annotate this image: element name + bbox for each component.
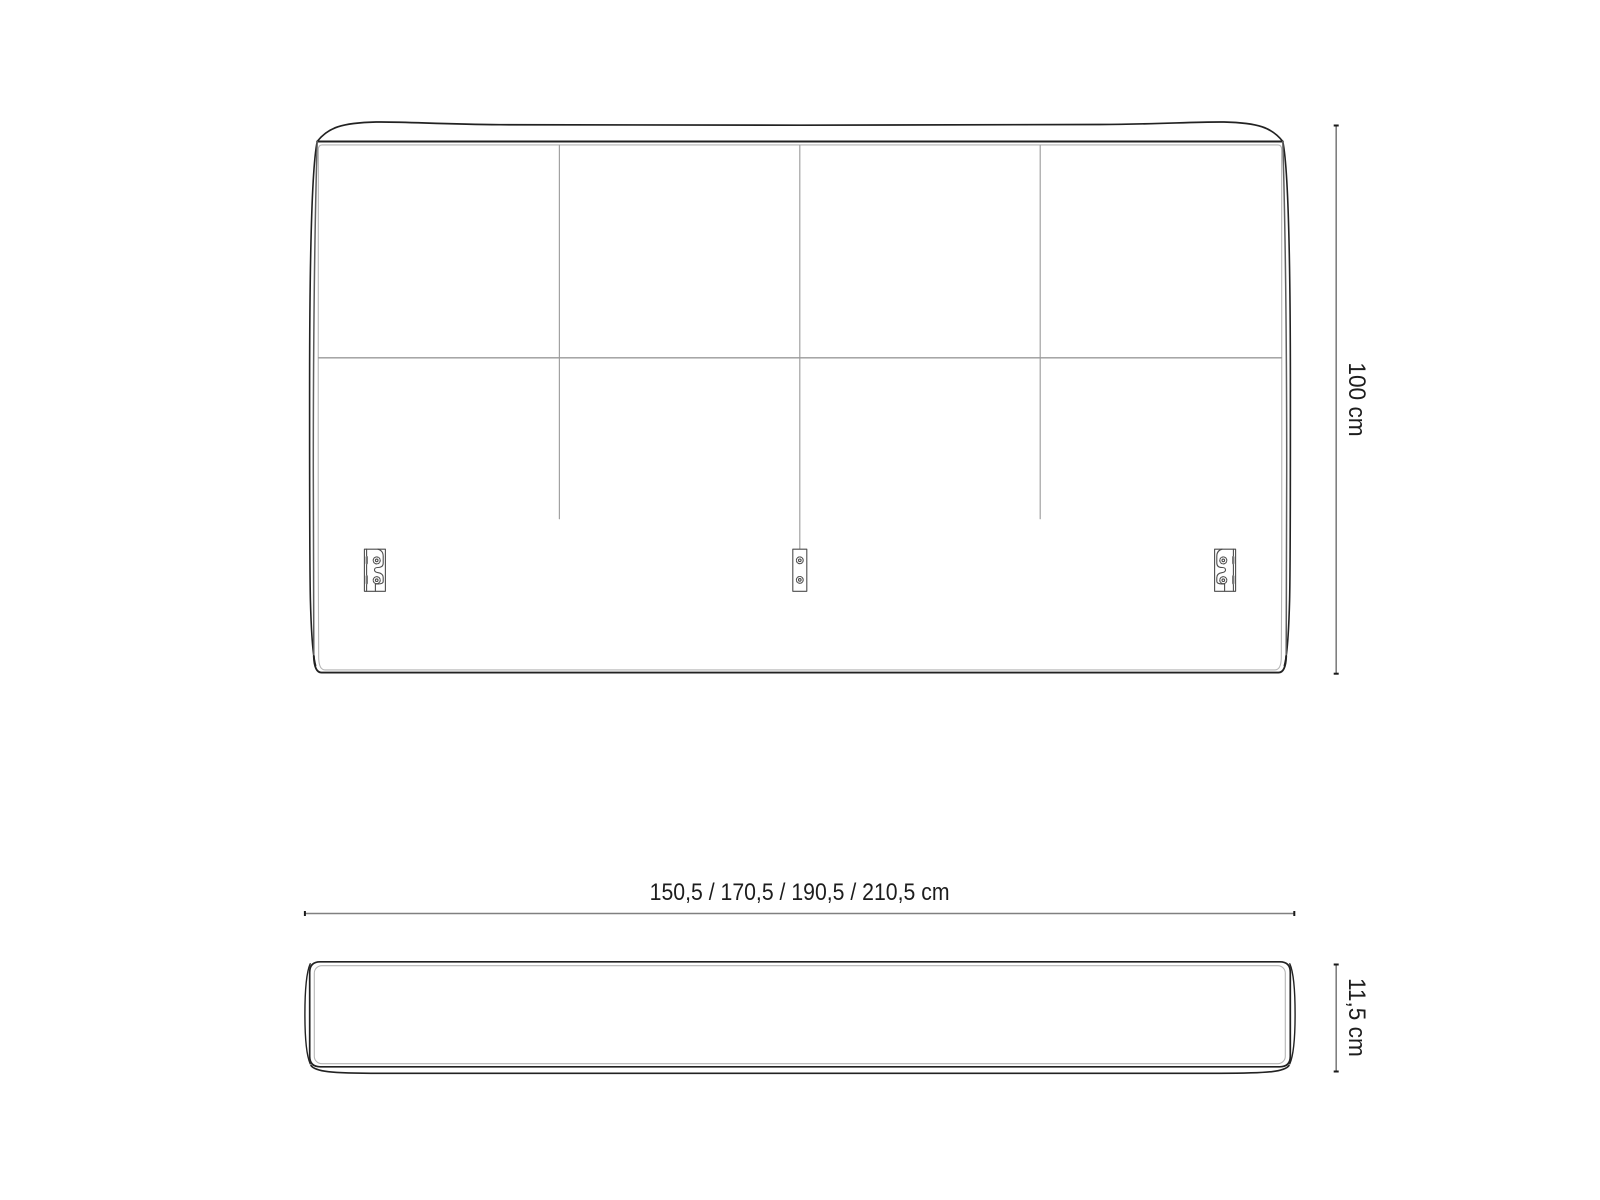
svg-text:11,5 cm: 11,5 cm — [1344, 978, 1371, 1057]
svg-text:100 cm: 100 cm — [1344, 362, 1371, 436]
svg-text:150,5 / 170,5 / 190,5 / 210,5: 150,5 / 170,5 / 190,5 / 210,5 cm — [650, 878, 950, 906]
